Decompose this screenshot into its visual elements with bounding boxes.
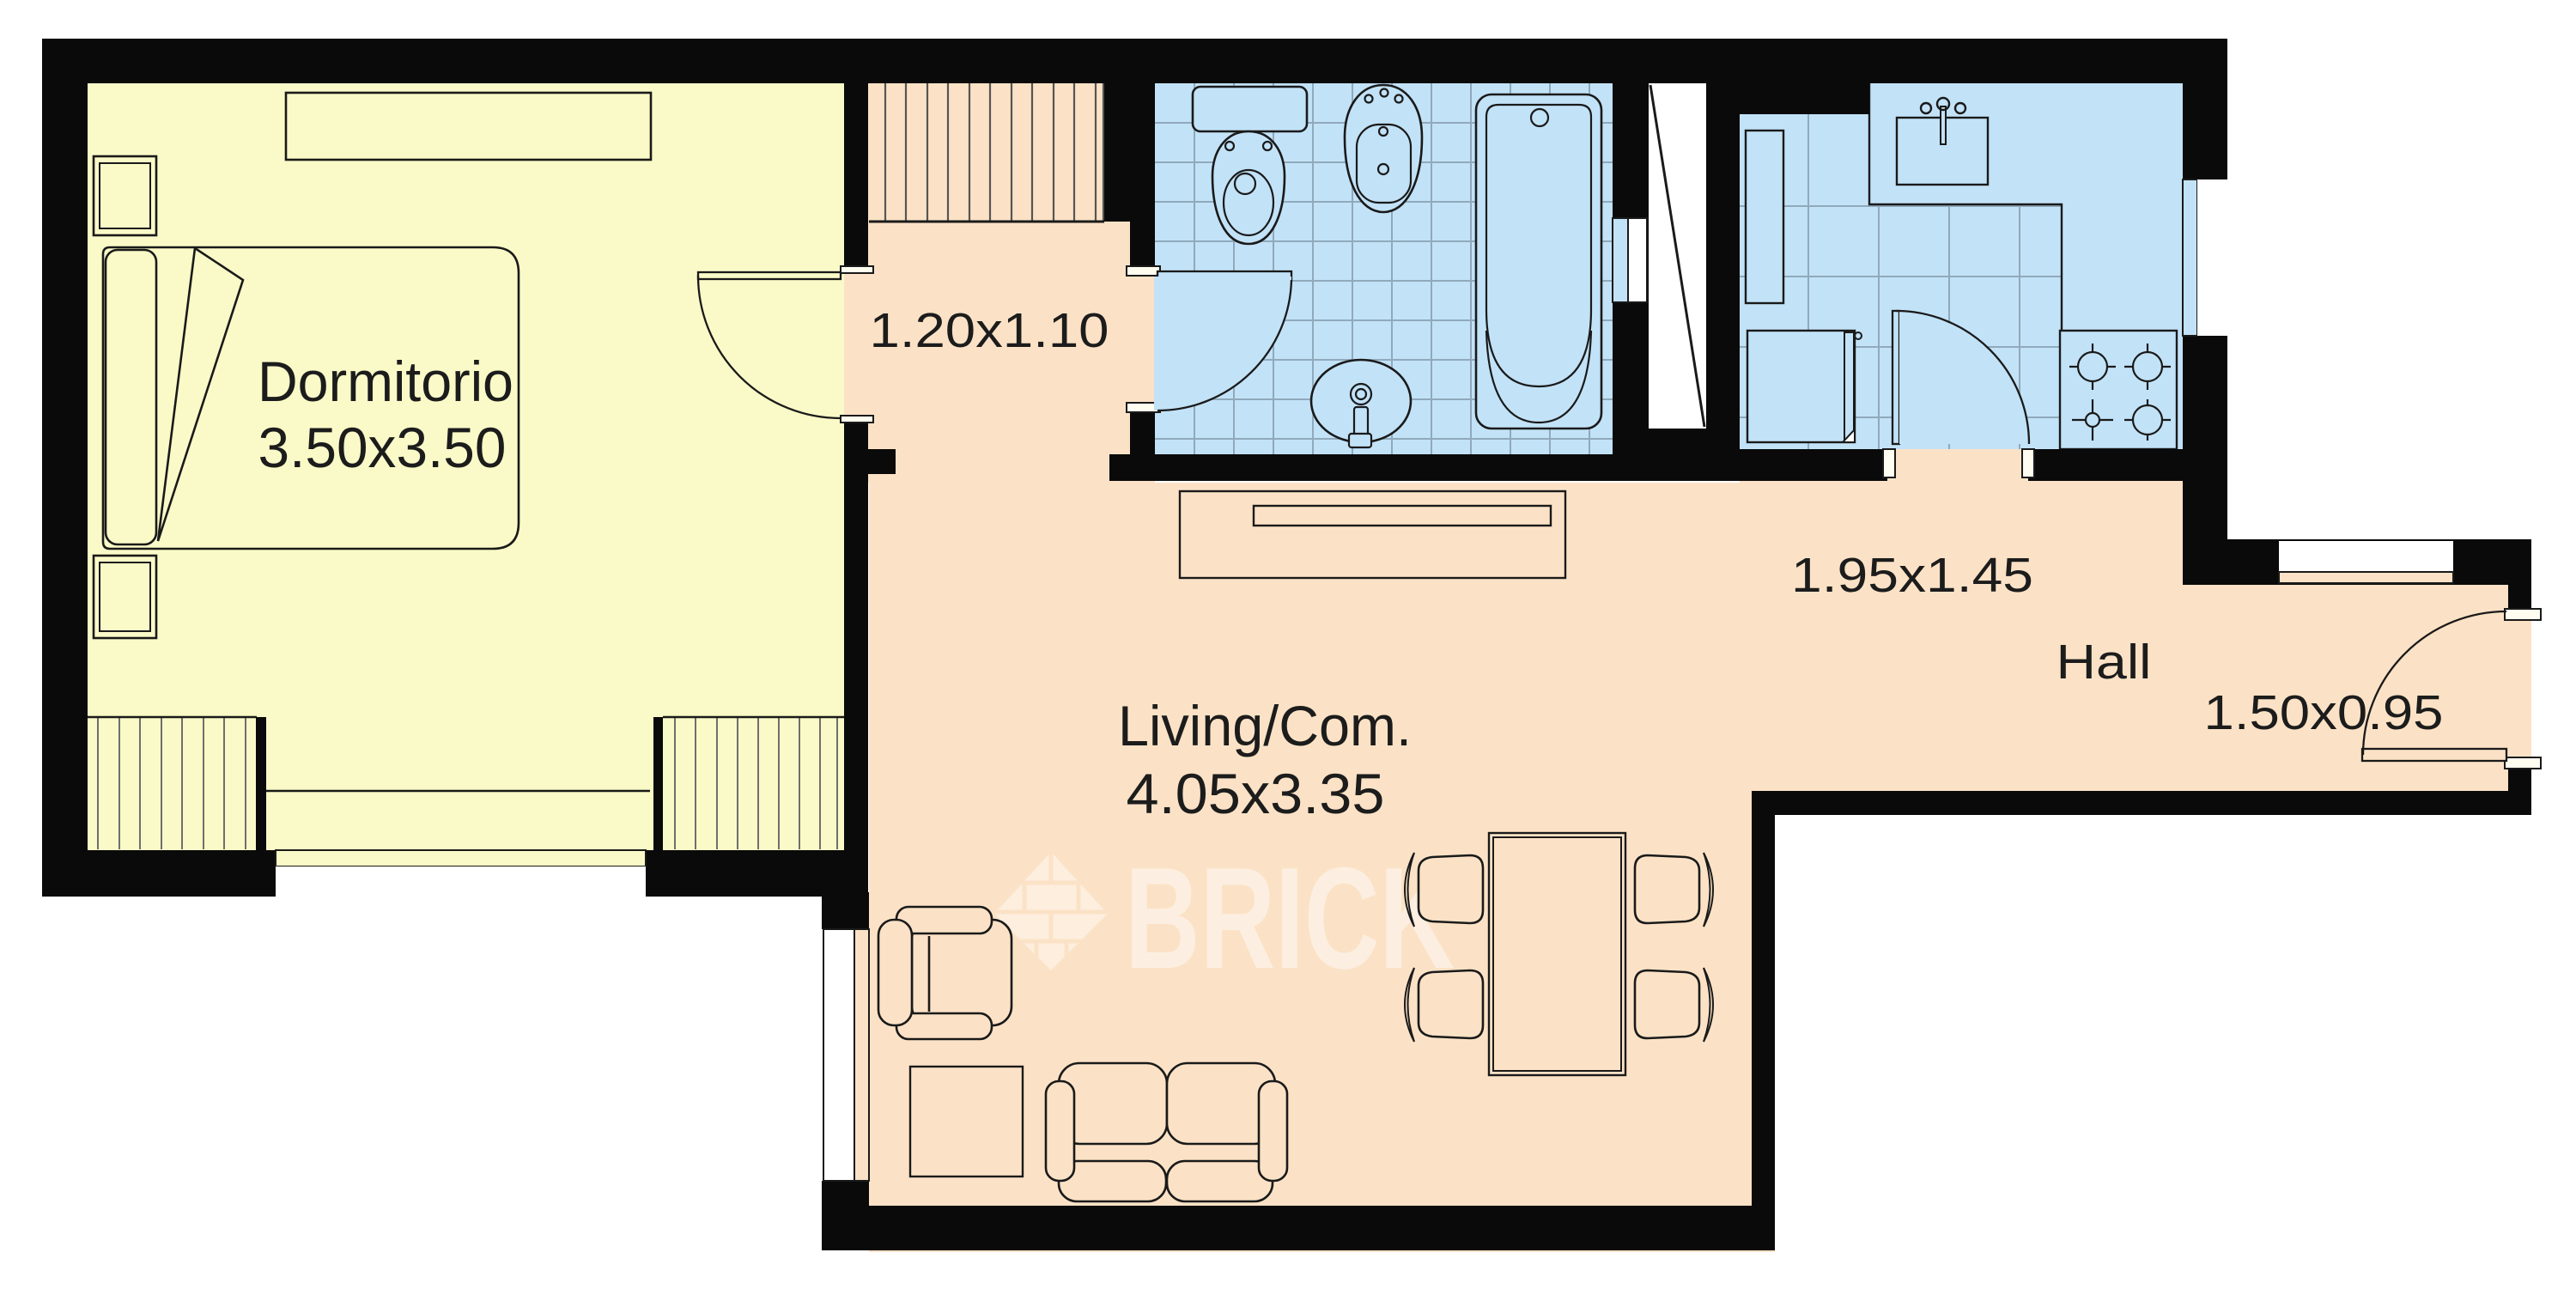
- svg-text:BRICK: BRICK: [1125, 837, 1455, 999]
- svg-text:3.50x3.50: 3.50x3.50: [258, 416, 507, 479]
- svg-text:1.20x1.10: 1.20x1.10: [870, 303, 1109, 358]
- svg-text:1.95x1.45: 1.95x1.45: [1791, 548, 2033, 603]
- svg-text:1.50x0.95: 1.50x0.95: [2204, 685, 2444, 740]
- svg-text:Hall: Hall: [2057, 635, 2152, 690]
- svg-text:4.05x3.35: 4.05x3.35: [1127, 762, 1385, 825]
- svg-text:Living/Com.: Living/Com.: [1118, 694, 1412, 757]
- svg-text:Dormitorio: Dormitorio: [258, 350, 513, 413]
